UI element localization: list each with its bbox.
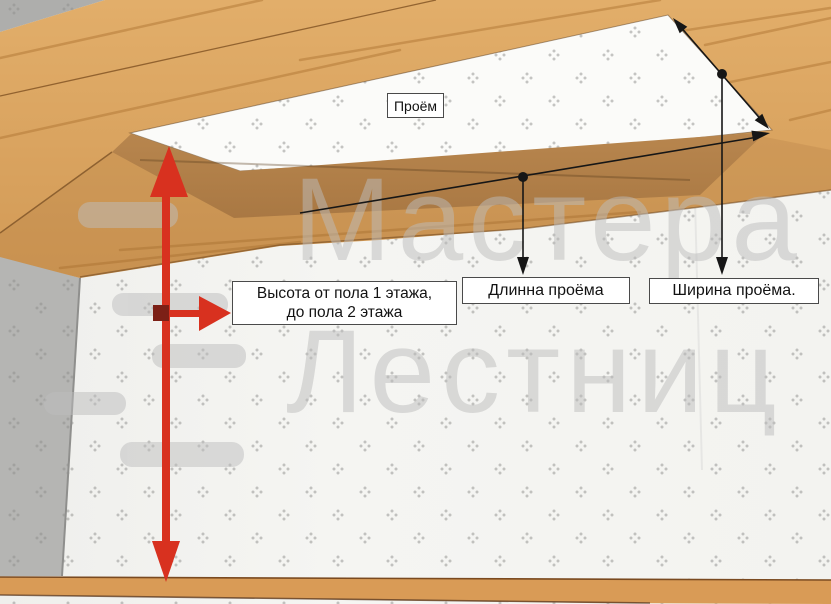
height-arrow-junction	[153, 305, 169, 321]
opening-label: Проём	[387, 93, 444, 118]
width-label: Ширина проёма.	[649, 278, 819, 304]
watermark-line1: Мастера	[293, 154, 802, 286]
opening-label-text: Проём	[394, 98, 437, 114]
watermark-line2: Лестниц	[286, 306, 783, 438]
length-label-text: Длинна проёма	[488, 282, 603, 300]
width-label-text: Ширина проёма.	[672, 282, 795, 300]
height-label-line1: Высота от пола 1 этажа,	[257, 284, 432, 303]
height-label: Высота от пола 1 этажа, до пола 2 этажа	[232, 281, 457, 325]
height-label-line2: до пола 2 этажа	[287, 303, 403, 322]
length-label: Длинна проёма	[462, 277, 630, 304]
diagram-stage: Мастера Лестниц Проём Высота от пола 1 э…	[0, 0, 831, 604]
